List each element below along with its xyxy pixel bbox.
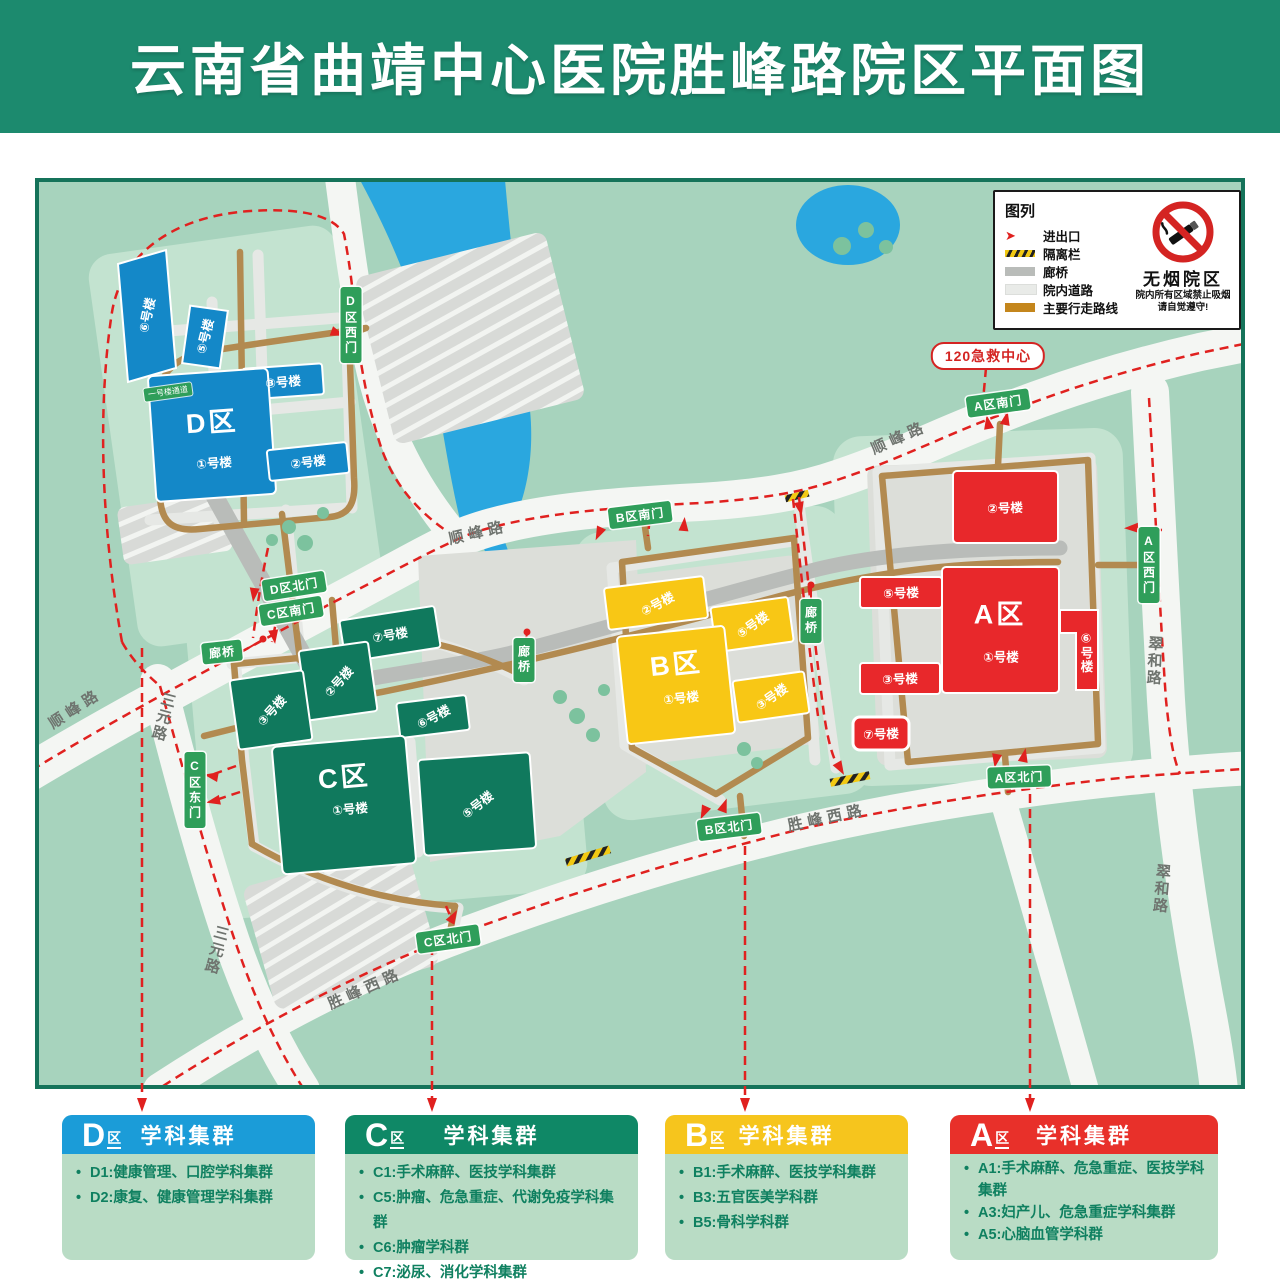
legend-item-corridor: 廊桥 (1005, 262, 1133, 280)
building-label-c1: ①号楼 (331, 797, 368, 819)
zone-label-b: B区 (648, 640, 704, 684)
building-label-d1: ①号楼 (196, 451, 233, 472)
list-item: B5:骨科学科群 (679, 1211, 898, 1236)
corridor-tag-mid: 廊桥 (514, 638, 535, 682)
building-label-b1: ①号楼 (662, 686, 699, 709)
emergency-center-badge: 120急救中心 (931, 342, 1045, 370)
legend-panel: 图列 ➤ 进出口 隔离栏 廊桥 院内道路 主要行走路线 (993, 190, 1241, 330)
cluster-card-b: B 区 学科集群 B1:手术麻醉、医技学科集群 B3:五官医美学科群 B5:骨科… (665, 1115, 908, 1260)
roadname-cuihe-top: 翠和路 (1142, 635, 1166, 687)
legend-title: 图列 (1005, 200, 1133, 221)
building-label-a7: ⑦号楼 (863, 723, 899, 743)
no-smoking-icon (1151, 200, 1215, 264)
corridor-bar-icon (1005, 267, 1037, 276)
building-label-a2: ②号楼 (987, 497, 1023, 517)
list-item: C5:肿瘤、危急重症、代谢免疫学科集群 (359, 1186, 628, 1236)
list-item: C1:手术麻醉、医技学科集群 (359, 1161, 628, 1186)
legend-item-entrance: ➤ 进出口 (1005, 226, 1133, 244)
list-item: B3:五官医美学科群 (679, 1186, 898, 1211)
card-connector-arrows (137, 1098, 1035, 1112)
building-label-a6: ⑥号楼 (1077, 631, 1096, 674)
cluster-card-c-header: C 区 学科集群 (345, 1115, 638, 1154)
list-item: A1:手术麻醉、危急重症、医技学科集群 (964, 1158, 1208, 1202)
legend-item-internal-road: 院内道路 (1005, 280, 1133, 298)
zone-label-c: C区 (316, 753, 372, 796)
building-label-a5: ⑤号楼 (883, 582, 919, 602)
gate-a-north: A区北门 (987, 765, 1050, 788)
no-smoking-line2: 请自觉遵守! (1158, 302, 1209, 314)
building-label-a3: ③号楼 (882, 668, 918, 688)
cluster-list-d: D1:健康管理、口腔学科集群 D2:康复、健康管理学科集群 (76, 1161, 305, 1211)
cluster-card-d: D 区 学科集群 D1:健康管理、口腔学科集群 D2:康复、健康管理学科集群 (62, 1115, 315, 1260)
list-item: D1:健康管理、口腔学科集群 (76, 1161, 305, 1186)
zone-label-d: D区 (184, 399, 239, 442)
legend-item-label: 主要行走路线 (1043, 298, 1118, 317)
cluster-card-b-header: B 区 学科集群 (665, 1115, 908, 1154)
entrance-arrow-icon: ➤ (1005, 229, 1037, 242)
building-label-d3: ③号楼 (264, 370, 301, 392)
cluster-card-d-header: D 区 学科集群 (62, 1115, 315, 1154)
gate-d-west: D区西门 (341, 287, 362, 363)
legend-item-label: 院内道路 (1043, 280, 1093, 299)
no-smoking-title: 无烟院区 (1143, 265, 1223, 290)
no-smoking-line1: 院内所有区域禁止吸烟 (1135, 290, 1230, 302)
zone-label-a: A区 (974, 593, 1027, 632)
list-item: C6:肿瘤学科群 (359, 1236, 628, 1261)
card-cluster-title: 学科集群 (345, 1120, 638, 1150)
corridor-tag-right: 廊桥 (801, 599, 822, 643)
list-item: A3:妇产儿、危急重症学科集群 (964, 1202, 1208, 1224)
legend-item-barrier: 隔离栏 (1005, 244, 1133, 262)
card-cluster-title: 学科集群 (62, 1120, 315, 1150)
roadname-cuihe-bottom: 翠和路 (1148, 863, 1173, 916)
card-cluster-title: 学科集群 (665, 1120, 908, 1150)
legend-item-label: 隔离栏 (1043, 244, 1081, 263)
legend-list: 图列 ➤ 进出口 隔离栏 廊桥 院内道路 主要行走路线 (1005, 200, 1133, 322)
list-item: A5:心脑血管学科群 (964, 1224, 1208, 1246)
cluster-list-a: A1:手术麻醉、危急重症、医技学科集群 A3:妇产儿、危急重症学科集群 A5:心… (964, 1158, 1208, 1246)
barrier-stripe-icon (1005, 250, 1037, 257)
gate-c-east: C区东门 (185, 752, 206, 828)
cluster-card-c: C 区 学科集群 C1:手术麻醉、医技学科集群 C5:肿瘤、危急重症、代谢免疫学… (345, 1115, 638, 1260)
legend-item-label: 廊桥 (1043, 262, 1068, 281)
list-item: B1:手术麻醉、医技学科集群 (679, 1161, 898, 1186)
gate-a-west: A区西门 (1139, 527, 1160, 603)
corridor-tag-left: 廊桥 (201, 639, 243, 664)
no-smoking-block: 无烟院区 院内所有区域禁止吸烟 请自觉遵守! (1133, 200, 1233, 322)
main-route-bar-icon (1005, 303, 1037, 312)
internal-road-bar-icon (1005, 284, 1037, 295)
list-item: D2:康复、健康管理学科集群 (76, 1186, 305, 1211)
cluster-list-b: B1:手术麻醉、医技学科集群 B3:五官医美学科群 B5:骨科学科群 (679, 1161, 898, 1236)
list-item: C7:泌尿、消化学科集群 (359, 1261, 628, 1286)
building-label-a1: ①号楼 (983, 647, 1019, 666)
card-cluster-title: 学科集群 (950, 1120, 1218, 1150)
cluster-card-a-header: A 区 学科集群 (950, 1115, 1218, 1154)
legend-item-main-route: 主要行走路线 (1005, 298, 1133, 316)
cluster-card-a: A 区 学科集群 A1:手术麻醉、危急重症、医技学科集群 A3:妇产儿、危急重症… (950, 1115, 1218, 1260)
cluster-list-c: C1:手术麻醉、医技学科集群 C5:肿瘤、危急重症、代谢免疫学科集群 C6:肿瘤… (359, 1161, 628, 1286)
legend-item-label: 进出口 (1043, 226, 1081, 245)
